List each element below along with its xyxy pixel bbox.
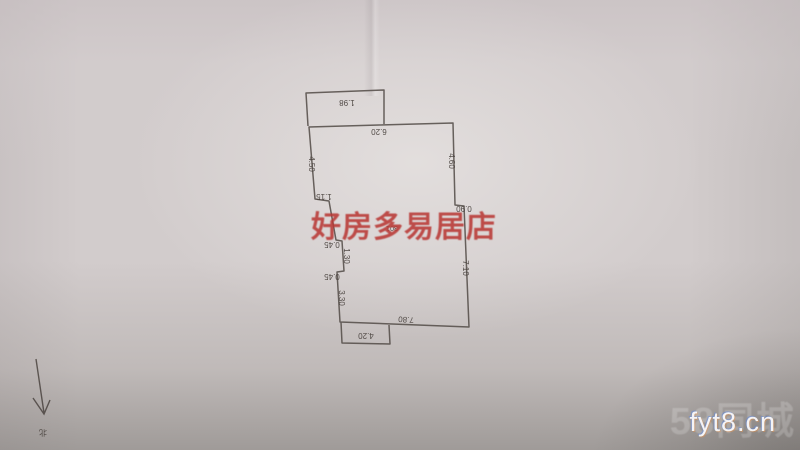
dim-right-wall-lower: 7.10 [461, 260, 470, 276]
agency-watermark: 好房多易居店 [311, 202, 497, 246]
dim-top-wall: 6.20 [371, 127, 387, 136]
site-watermark: fyt8.cn [689, 407, 776, 438]
dim-left-wall-middle: 1.30 [342, 248, 351, 264]
dim-right-wall-upper: 4.60 [447, 153, 456, 169]
floorplan-photo: 1.98 6.20 4.50 4.60 1.15 0.45 1.30 0.45 … [0, 0, 800, 450]
dim-left-jog-lower: 0.45 [324, 272, 340, 281]
dim-top-balcony: 1.98 [339, 98, 355, 107]
dim-left-wall-lower: 3.30 [337, 290, 346, 306]
dim-left-step: 1.15 [316, 192, 332, 201]
dim-left-wall-upper: 4.50 [307, 156, 316, 172]
dim-bottom-wall: 7.80 [397, 314, 414, 324]
north-arrow [33, 359, 50, 414]
top-balcony-outline [306, 90, 384, 126]
dim-bottom-balcony: 4.20 [358, 331, 374, 340]
north-label: 北 [39, 428, 47, 437]
